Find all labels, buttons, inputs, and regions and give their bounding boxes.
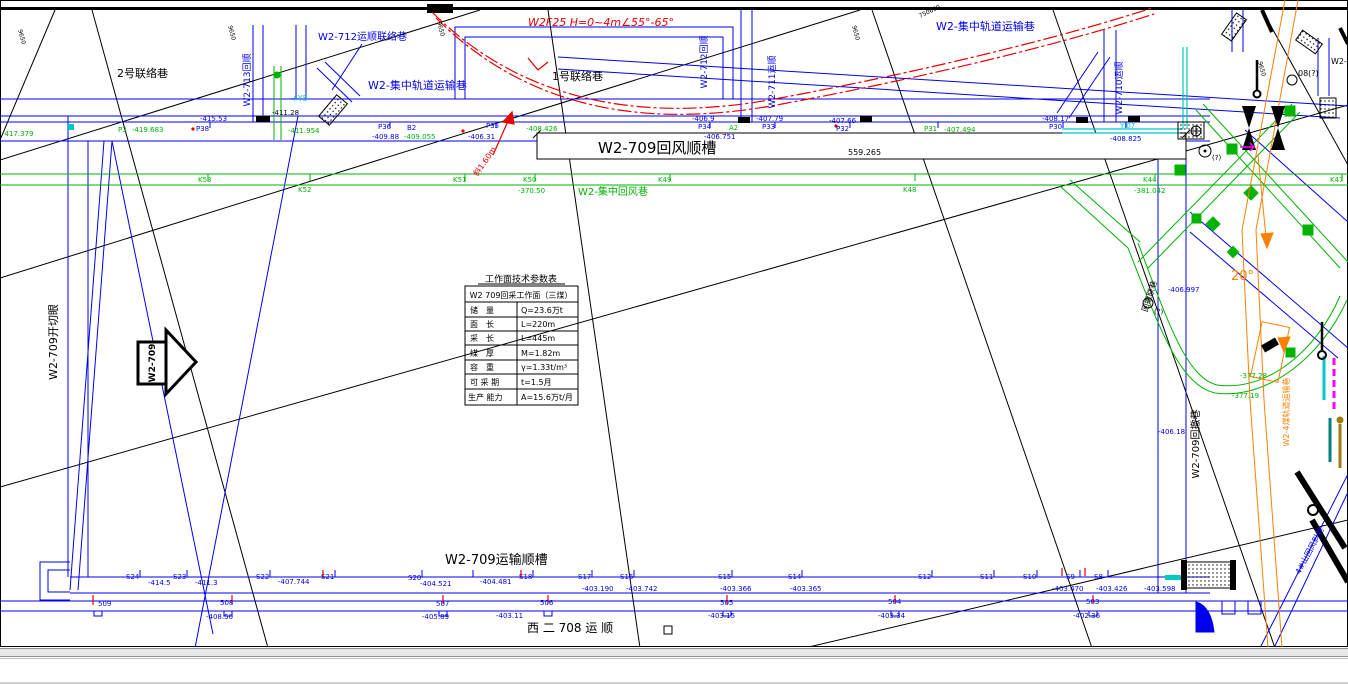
- label-lianluoxiang-1: 1号联络巷: [552, 69, 603, 83]
- station-label: -406.751: [704, 133, 735, 141]
- mark-y5: +Y5: [291, 94, 308, 103]
- ventilation-door-icon: [1271, 106, 1285, 150]
- station-label: S21: [321, 573, 334, 581]
- station-label: 505: [720, 599, 733, 607]
- station-label: -408.426: [526, 125, 558, 133]
- label-lianluoxiang-2: 2号联络巷: [117, 66, 168, 80]
- station-label: -411.28: [272, 109, 299, 117]
- table-key: 煤 厚: [470, 348, 494, 358]
- station-label: P35: [486, 122, 499, 130]
- station-label: -411.3: [195, 579, 218, 587]
- station-label: -381.042: [1134, 187, 1165, 195]
- label-w2-713: W2-713回顺: [242, 53, 253, 106]
- label-w2-709-yunshu: W2-709运输顺槽: [445, 552, 548, 568]
- blue-roadways: [0, 10, 1348, 648]
- label-sishan-huifeng: 4#山回风斜巷: [1293, 525, 1326, 575]
- borehole-icon: [1318, 351, 1326, 359]
- station-label: -408.17: [1042, 115, 1069, 123]
- label-kaiqieyan: W2-709开切眼: [47, 304, 60, 380]
- table-key: 可 采 期: [470, 377, 499, 387]
- station-label: -407.744: [278, 578, 310, 586]
- table-header: W2 709回采工作面（三煤）: [470, 290, 573, 300]
- station-label: S9: [1066, 573, 1075, 581]
- station-label: 504: [888, 598, 902, 606]
- borehole-icon: [1254, 91, 1261, 98]
- station-label: -403.190: [582, 585, 613, 593]
- station-label: S11: [980, 573, 993, 581]
- station-label: S17: [578, 573, 591, 581]
- station-label: P33: [762, 123, 775, 131]
- station-label: -404.481: [480, 578, 511, 586]
- station-label: S16: [620, 573, 634, 581]
- station-label: -403.15: [708, 612, 735, 620]
- table-key: 采 长: [470, 333, 494, 343]
- table-key: 储 量: [470, 305, 494, 315]
- station-label: -407.66: [829, 117, 857, 125]
- label-jizhong-guidao-right: W2-集中轨道运输巷: [936, 19, 1035, 33]
- label-fault: W2F25 H=0~4m∠55°-65°: [528, 16, 674, 29]
- station-label: S18: [519, 573, 532, 581]
- orange-features: [1242, 0, 1298, 648]
- station-label: K50: [523, 176, 537, 184]
- grid-ref-label: 9650: [435, 21, 446, 38]
- station-label: 503: [1086, 598, 1099, 606]
- station-label: 507: [436, 600, 449, 608]
- label-huichexiang: W2-709回撤巷: [1189, 410, 1202, 479]
- station-label: -415.53: [200, 115, 227, 123]
- grid-ref-label: 750650: [918, 4, 942, 20]
- station-label: -403.34: [878, 612, 906, 620]
- station-label: S14: [788, 573, 802, 581]
- table-val: t=1.5月: [521, 378, 552, 387]
- dim-559: 559.265: [848, 148, 881, 157]
- cad-drawing-window: 2号联络巷 1号联络巷 W2-712运顺联络巷 W2-集中轨道运输巷 W2-集中…: [0, 0, 1348, 684]
- station-label: P3: [118, 126, 127, 134]
- station-label: -403.426: [1096, 585, 1128, 593]
- advance-arrow-marker: [138, 330, 196, 394]
- label-w2-711: W2-711运顺: [767, 55, 778, 108]
- station-label: K48: [903, 186, 917, 194]
- label-xier-708: 西 二 708 运 顺: [527, 621, 613, 635]
- station-label: -404.521: [420, 580, 451, 588]
- station-label: -370.50: [518, 187, 545, 195]
- station-label: -408.50: [206, 613, 233, 621]
- station-label: -417.379: [2, 130, 33, 138]
- station-label: P31: [924, 125, 937, 133]
- grid-ref-label: 9650: [850, 25, 861, 42]
- station-label: S24: [126, 573, 140, 581]
- station-label: -377.19: [1232, 392, 1259, 400]
- mark-w2-partial: W2-: [1331, 57, 1347, 66]
- table-key: 生产 能力: [468, 392, 503, 402]
- station-label: K49: [658, 176, 672, 184]
- station-label: -402.36: [1073, 612, 1101, 620]
- cyan-features: [68, 47, 1324, 580]
- table-val: A=15.6万t/月: [521, 393, 573, 402]
- station-label: P34: [698, 123, 712, 131]
- table-title: 工作面技术参数表: [485, 273, 557, 285]
- station-label: -403.470: [1052, 585, 1083, 593]
- station-label: -406.31: [468, 133, 495, 141]
- mark-a2: A2: [729, 124, 738, 132]
- label-w2-709-huifeng: W2-709回风顺槽: [598, 139, 716, 157]
- station-label: -405.89: [422, 613, 449, 621]
- table-key: 容 重: [470, 362, 494, 372]
- station-label: -403.742: [626, 585, 657, 593]
- window-chrome-bottom: [0, 647, 1348, 684]
- label-w2-712-lianluoxiang: W2-712运顺联络巷: [318, 30, 407, 43]
- grid-ref-label: 9650: [226, 25, 237, 42]
- table-val: Q=23.6万t: [521, 306, 563, 315]
- mark-yj07: YJ07: [1119, 122, 1135, 130]
- station-label: S22: [256, 573, 269, 581]
- cad-canvas[interactable]: 2号联络巷 1号联络巷 W2-712运顺联络巷 W2-集中轨道运输巷 W2-集中…: [0, 0, 1348, 684]
- drawing-frame: [0, 1, 1348, 647]
- station-label: S15: [718, 573, 731, 581]
- station-label: K53: [198, 176, 212, 184]
- station-label: 506: [540, 599, 554, 607]
- station-label: -411.954: [288, 127, 320, 135]
- station-label: P32: [836, 125, 849, 133]
- station-label: -406.997: [1168, 286, 1199, 294]
- station-label: K47: [1330, 176, 1344, 184]
- station-label: -403.598: [1144, 585, 1175, 593]
- station-label: -414.5: [148, 579, 171, 587]
- station-label: -408.825: [1110, 135, 1141, 143]
- advance-arrow-label: W2-709: [148, 344, 158, 383]
- table-val: M=1.82m: [521, 349, 560, 358]
- label-w2-712: W2-712回顺: [699, 35, 710, 88]
- table-val: L=220m: [521, 320, 555, 329]
- station-label: -406.9: [692, 115, 715, 123]
- label-jizhong-guidao-left: W2-集中轨道运输巷: [368, 78, 467, 92]
- station-label: -406.18: [1158, 428, 1185, 436]
- mark-q1: (?): [1212, 154, 1221, 162]
- station-label: -403.11: [496, 612, 523, 620]
- station-label: -403.365: [790, 585, 821, 593]
- station-label: S23: [173, 573, 186, 581]
- mark-q2: (?): [1154, 308, 1163, 316]
- station-label: 509: [98, 600, 111, 608]
- station-label: K52: [298, 186, 312, 194]
- table-val: L=445m: [521, 334, 555, 343]
- label-w2-4mei: W2-4煤轨道运输巷: [1281, 378, 1291, 447]
- station-label: -407.79: [756, 115, 783, 123]
- station-label: -409.88: [372, 133, 399, 141]
- dip-angle-label: 20°: [1231, 269, 1254, 284]
- grid-ref-label: 9650: [16, 29, 27, 46]
- label-jizhong-huifeng: W2-集中回风巷: [578, 185, 648, 198]
- station-label: K51: [453, 176, 467, 184]
- station-label: S8: [1094, 573, 1103, 581]
- text-labels: 2号联络巷 1号联络巷 W2-712运顺联络巷 W2-集中轨道运输巷 W2-集中…: [2, 4, 1347, 635]
- table-key: 面 长: [470, 319, 494, 329]
- station-label: K44: [1143, 176, 1157, 184]
- station-label: S10: [1023, 573, 1036, 581]
- label-w2-710: W2-710运顺: [1114, 61, 1125, 114]
- solids: [256, 10, 1348, 634]
- station-label: S12: [918, 573, 931, 581]
- station-label: -403.366: [720, 585, 752, 593]
- mark-08: 08(?): [1298, 69, 1319, 78]
- station-label: 508: [220, 599, 233, 607]
- station-label: -377.28: [1240, 372, 1267, 380]
- station-label: -419.683: [132, 126, 163, 134]
- label-xie160: 斜1.60m: [471, 144, 499, 177]
- station-label: P38: [196, 125, 209, 133]
- station-label: P30: [1049, 123, 1062, 131]
- mark-b2: B2: [407, 124, 416, 132]
- table-val: γ=1.33t/m³: [521, 363, 567, 372]
- station-label: P36: [378, 123, 392, 131]
- station-label: -407.494: [944, 126, 976, 134]
- station-label: -409.055: [404, 133, 435, 141]
